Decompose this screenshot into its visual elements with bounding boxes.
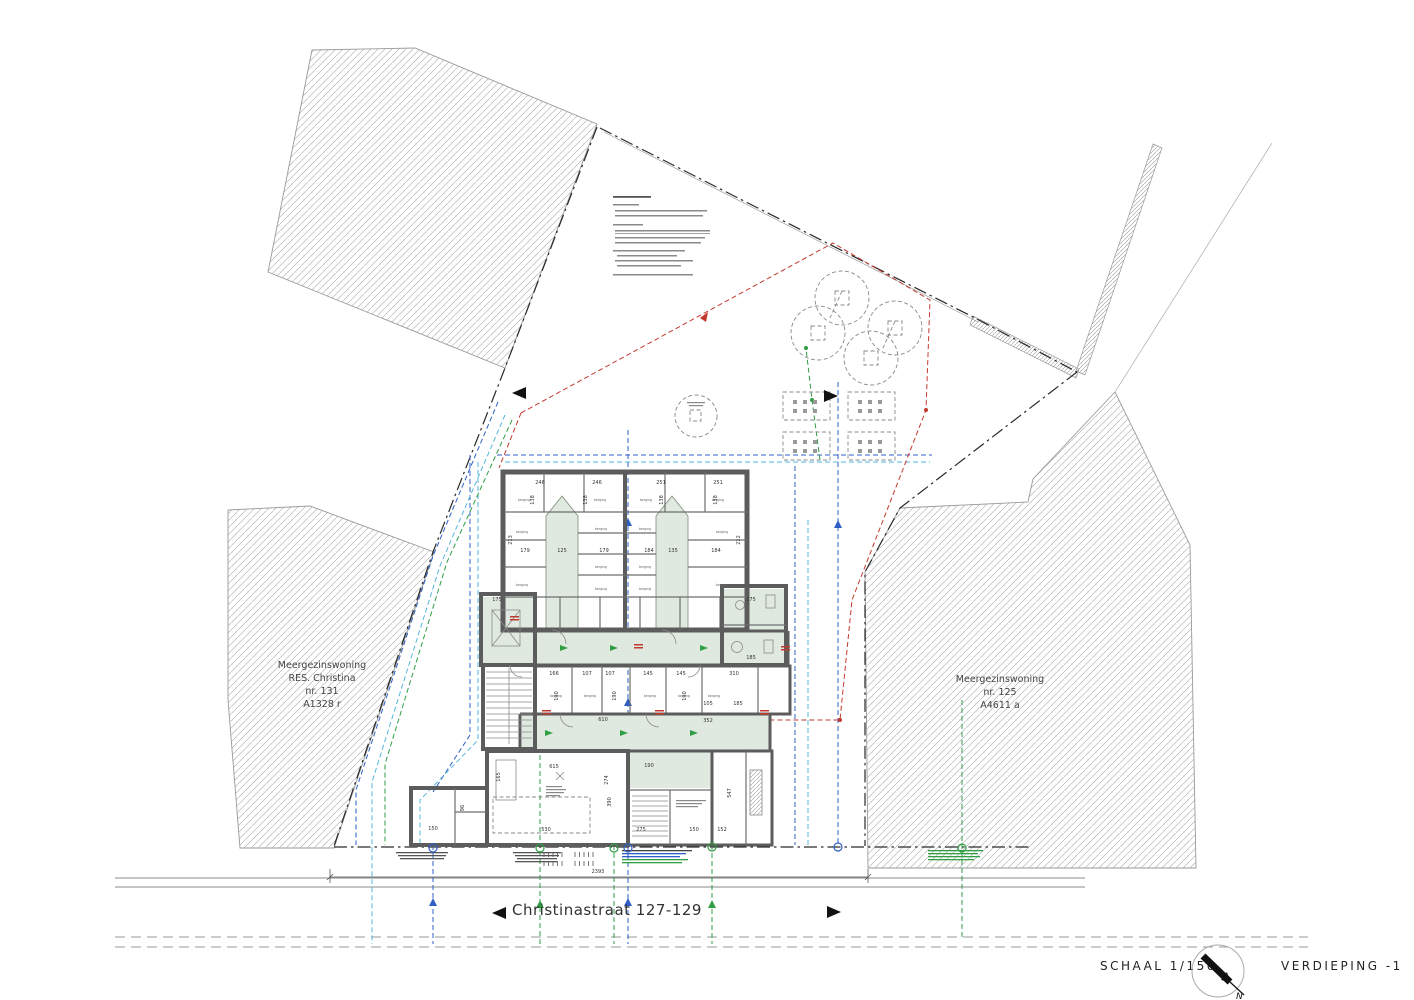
- annotation-mixed: [622, 850, 692, 863]
- dimension-text: 166: [549, 671, 559, 677]
- dimension-text: 251: [656, 480, 666, 486]
- dimension-text: 246: [535, 480, 545, 486]
- dimension-text: 152: [717, 827, 727, 833]
- scale-label: SCHAAL 1/150: [1100, 959, 1217, 973]
- drawing-sheet: 2462462512511381381381382132121791251791…: [0, 0, 1414, 1000]
- dimension-text: 96: [460, 805, 466, 811]
- dimension-text: 175: [746, 597, 756, 603]
- site-notes-block: [613, 196, 710, 276]
- parcel-left-line2: RES. Christina: [288, 673, 355, 684]
- parcel-north-west: [268, 48, 597, 368]
- parcel-right-line3: A4611 a: [980, 700, 1020, 711]
- room-name: berging: [712, 498, 724, 502]
- dimension-text: 125: [557, 548, 567, 554]
- dimension-text: 212: [736, 535, 742, 545]
- room-name: berging: [639, 587, 651, 591]
- water-tanks: [675, 271, 922, 437]
- dimension-text: 135: [668, 548, 678, 554]
- radiator: [750, 770, 762, 815]
- dimension-text: 105: [703, 701, 713, 707]
- dimension-text: 165: [496, 772, 502, 782]
- dimension-text: 274: [604, 775, 610, 785]
- wall-strip-b: [1076, 144, 1162, 375]
- room-name: berging: [550, 694, 562, 698]
- section-arrow-right: [824, 390, 838, 402]
- dimension-text: 547: [727, 788, 733, 798]
- room-name: berging: [516, 583, 528, 587]
- rainwater-pit-label: [687, 402, 705, 406]
- dimension-text: 150: [428, 826, 438, 832]
- infiltration-crates: [783, 392, 895, 460]
- dimension-text: 138: [659, 495, 665, 505]
- dimension-text: 530: [541, 827, 551, 833]
- labels: Meergezinswoning RES. Christina nr. 131 …: [278, 660, 1403, 973]
- dimension-text: 185: [733, 701, 743, 707]
- bottom-left-annex: [411, 788, 487, 845]
- wall-strip-a: [970, 316, 1079, 378]
- dimension-text: 145: [643, 671, 653, 677]
- dimension-text: 175: [492, 597, 502, 603]
- room-name: berging: [639, 527, 651, 531]
- room-name: berging: [640, 498, 652, 502]
- room-name: berging: [595, 527, 607, 531]
- section-arrow-bottom-right: [827, 906, 841, 918]
- room-name: berging: [518, 498, 530, 502]
- flow-arrows-blue: [429, 518, 842, 906]
- dimension-text: 138: [530, 495, 536, 505]
- room-name: berging: [584, 694, 596, 698]
- dimension-text: 615: [549, 764, 559, 770]
- rainwater-pit: [675, 395, 717, 437]
- site-plan-drawing: 2462462512511381381381382132121791251791…: [0, 0, 1414, 1000]
- dimension-text: 246: [592, 480, 602, 486]
- dimension-text: 107: [605, 671, 615, 677]
- dimension-text: 275: [636, 827, 646, 833]
- dimension-text: 184: [711, 548, 721, 554]
- dimension-text: 190: [612, 691, 618, 701]
- dimension-text: 184: [644, 548, 654, 554]
- room-name: berging: [716, 583, 728, 587]
- overall-dimension: 2393: [592, 869, 605, 875]
- parcel-line: [1115, 143, 1272, 392]
- dimension-text: 251: [713, 480, 723, 486]
- room-name: berging: [644, 694, 656, 698]
- room-name: berging: [595, 587, 607, 591]
- parcel-left-line4: A1328 r: [303, 699, 341, 710]
- room-note: [546, 786, 566, 796]
- room-name: berging: [595, 565, 607, 569]
- dimension-text: 179: [520, 548, 530, 554]
- dimension-text: 390: [607, 797, 613, 807]
- north-letter: N: [1236, 992, 1243, 1000]
- dimension-text: 179: [599, 548, 609, 554]
- dimension-text: 107: [582, 671, 592, 677]
- dimension-text: 310: [729, 671, 739, 677]
- dimension-text: 190: [644, 763, 654, 769]
- parcel-right-line2: nr. 125: [983, 687, 1016, 698]
- parcel-left-line1: Meergezinswoning: [278, 660, 366, 671]
- room-name: berging: [516, 530, 528, 534]
- room-name: berging: [708, 694, 720, 698]
- room-name: berging: [678, 694, 690, 698]
- parcel-left-line3: nr. 131: [305, 686, 338, 697]
- parcel-right-line1: Meergezinswoning: [956, 674, 1044, 685]
- section-arrow-left: [512, 387, 526, 399]
- room-name: berging: [716, 530, 728, 534]
- street-name: Christinastraat 127-129: [512, 901, 702, 919]
- room-name: berging: [639, 565, 651, 569]
- room-name: berging: [594, 498, 606, 502]
- dimension-text: 185: [746, 655, 756, 661]
- dimension-text: 150: [689, 827, 699, 833]
- dimension-text: 138: [583, 495, 589, 505]
- parcel-east: [865, 392, 1196, 868]
- meter-room-note: [676, 800, 706, 807]
- cell-row: [535, 666, 790, 714]
- dimension-text: 213: [508, 535, 514, 545]
- dimension-text: 145: [676, 671, 686, 677]
- level-label: VERDIEPING -1: [1281, 959, 1403, 973]
- dimension-text: 352: [703, 718, 713, 724]
- section-arrow-bottom-left: [492, 907, 506, 919]
- dimension-text: 610: [598, 717, 608, 723]
